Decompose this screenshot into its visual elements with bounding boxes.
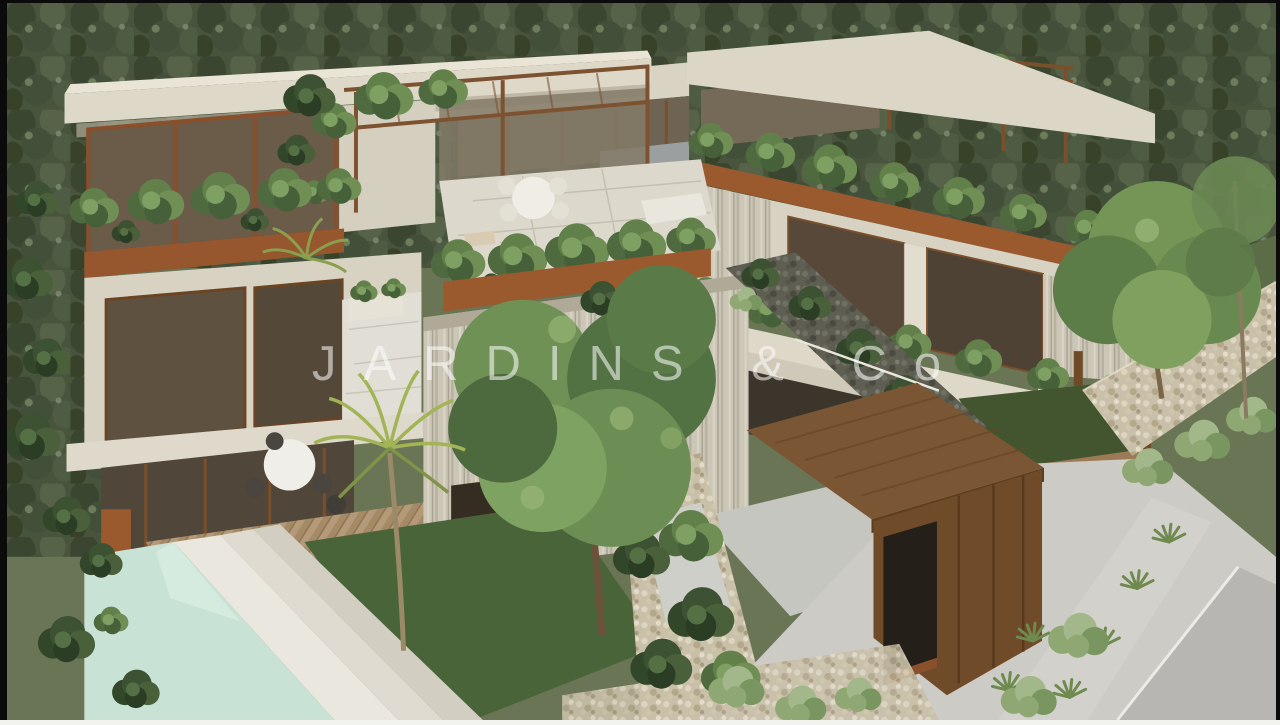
- window-glass: [106, 288, 245, 450]
- rendered-image-frame: JARDINS & Co: [0, 0, 1280, 725]
- bottom-strip: [0, 720, 1280, 725]
- render-scene: [7, 3, 1276, 720]
- window-glass: [255, 280, 342, 428]
- rooftop-dining-table: [512, 176, 556, 220]
- architectural-render: [7, 3, 1276, 720]
